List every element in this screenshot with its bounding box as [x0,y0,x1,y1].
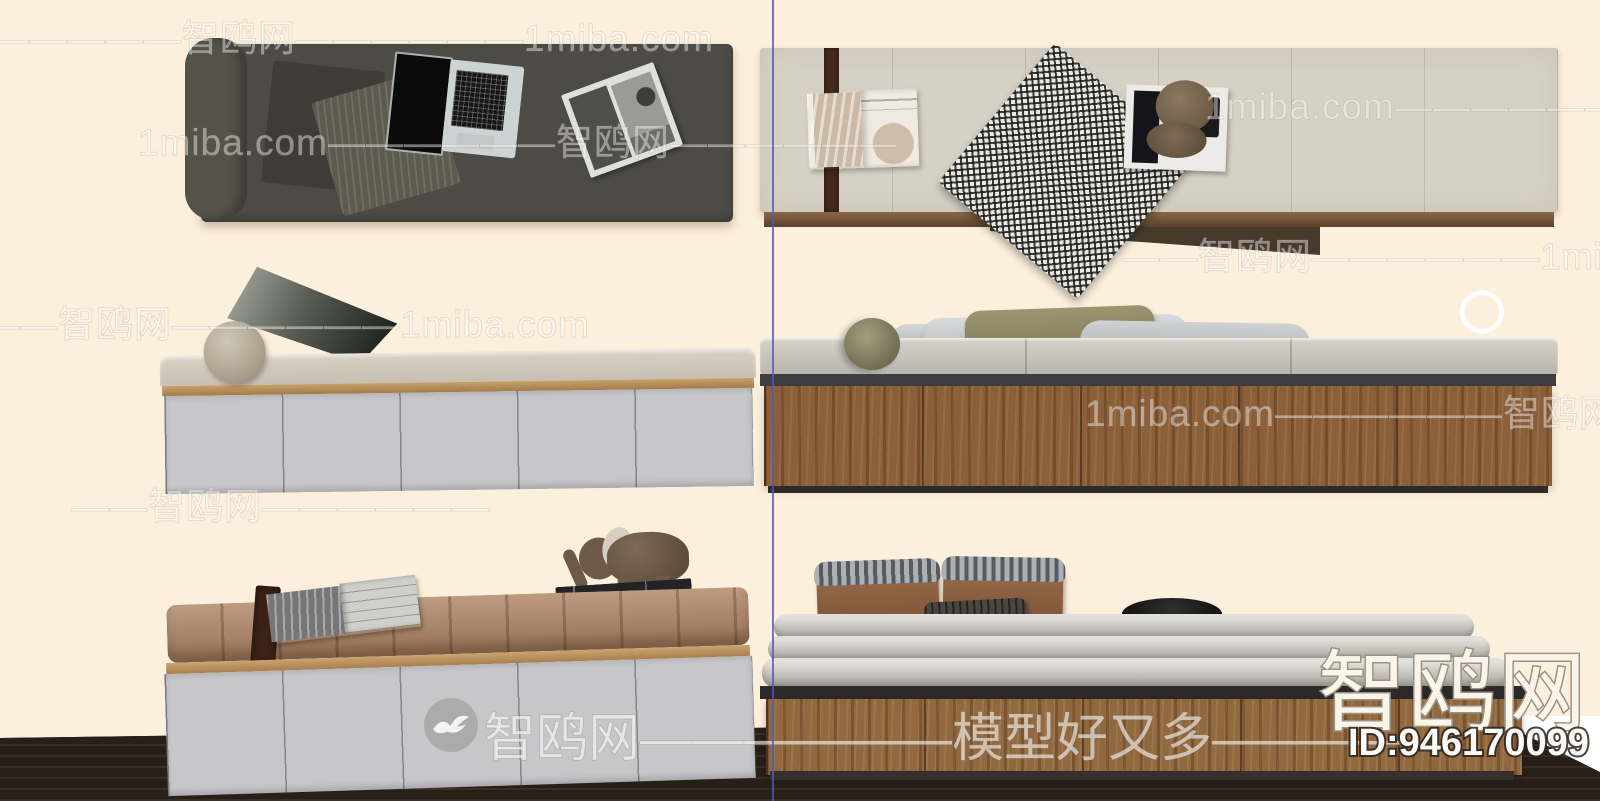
magazine-with-hat [1124,84,1229,172]
open-magazine [807,88,920,170]
ring-marker-icon [1460,290,1504,334]
bed-front-edge [764,212,1554,227]
bed-dark-top-view [185,36,733,228]
base-shadow [770,771,1514,780]
bed-wood-cabinet [760,300,1560,496]
model-id-badge: ID:946170099 [1348,722,1589,765]
laptop-keyboard [451,70,509,131]
dark-trim [760,374,1556,386]
magazine-right-page [339,575,420,634]
bed-grey-cabinet [158,260,757,496]
olive-bolster-pillow [844,318,900,370]
pillow-striped-cap [814,558,941,586]
base-shadow [768,486,1548,493]
laptop [385,51,524,160]
section-divider-line [772,0,774,801]
magazine-right-page [861,88,920,168]
model-preview-image: —————智鸥网——————1miba.com1miba.com——————智鸥… [0,0,1600,801]
magazine-left-page [807,92,864,168]
storage-cabinet [164,656,756,796]
bed-tufted-mattress [154,515,762,801]
pillow-striped-cap [941,556,1065,582]
wood-storage-cabinet [764,386,1552,486]
bolster-pillow [185,38,247,220]
magazine-left-page [266,586,345,642]
bed-light-top-view [760,38,1560,258]
storage-cabinet [164,388,753,494]
